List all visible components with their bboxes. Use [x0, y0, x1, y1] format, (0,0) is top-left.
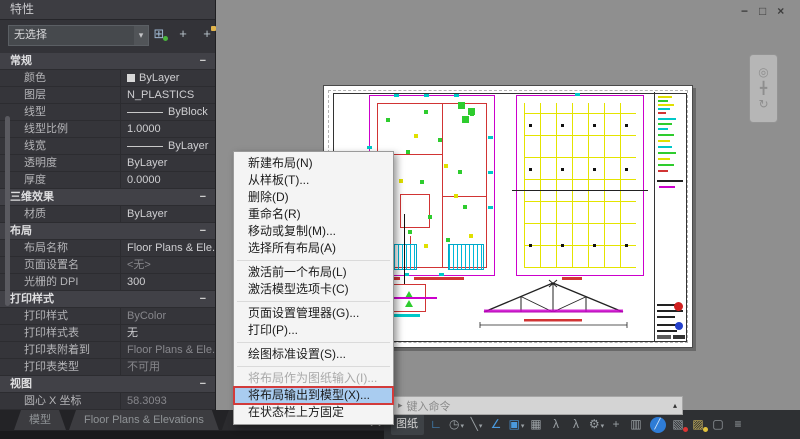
property-value[interactable]: <无> [120, 257, 215, 273]
legend-text-line [658, 164, 674, 166]
command-prompt-icon: ▸ [392, 400, 407, 411]
legend-strip [654, 92, 687, 341]
property-label: 线宽 [0, 138, 120, 154]
context-menu-item[interactable]: 将布局作为图纸输入(I)... [234, 370, 393, 387]
wall-line [442, 196, 487, 197]
property-row[interactable]: 颜色 ByLayer [0, 70, 215, 87]
titleblock-fill [657, 335, 671, 339]
legend-text-line [658, 96, 672, 98]
property-label: 光栅的 DPI [0, 274, 120, 290]
property-label: 打印样式表 [0, 325, 120, 341]
linetype-sample-icon [127, 112, 163, 113]
titleblock-logo-red [674, 302, 683, 311]
annotation-monitor-icon[interactable]: + [607, 414, 626, 435]
property-value[interactable]: ByLayer [120, 206, 215, 222]
property-row[interactable]: 图层 N_PLASTICS [0, 87, 215, 104]
workspace-switching-icon[interactable]: ⚙▾ [587, 414, 606, 435]
symbol-dots-yellow [414, 134, 418, 138]
property-label: 视图 [0, 376, 32, 392]
property-label: 图层 [0, 87, 120, 103]
quick-properties-icon[interactable]: ▥ [627, 414, 646, 435]
property-row[interactable]: 线宽 ByLayer [0, 138, 215, 155]
trusted-sources-icon[interactable]: ▨ [689, 414, 708, 435]
property-row[interactable]: 布局名称 Floor Plans & Ele... [0, 240, 215, 257]
layout-tab-context-menu: 新建布局(N)从样板(T)...删除(D)重命名(R)移动或复制(M)...选择… [233, 151, 394, 425]
property-row[interactable]: 打印样式 ByColor [0, 308, 215, 325]
property-row[interactable]: 厚度 0.0000 [0, 172, 215, 189]
context-menu-item[interactable]: 从样板(T)... [234, 172, 393, 189]
property-row[interactable]: 视图 − [0, 376, 215, 393]
linetype-sample-icon [127, 146, 163, 147]
titleblock-fill [673, 335, 685, 339]
property-label: 圆心 X 坐标 [0, 393, 120, 409]
property-label: 颜色 [0, 70, 120, 86]
annotation-visibility-icon[interactable]: λ [547, 414, 566, 435]
context-menu-item[interactable]: 删除(D) [234, 189, 393, 206]
property-label: 打印表类型 [0, 359, 120, 375]
wall-line [442, 103, 443, 268]
property-row[interactable]: 打印样式 − [0, 291, 215, 308]
collapse-icon[interactable]: − [200, 223, 215, 239]
legend-text-line [658, 134, 674, 136]
detail-caption-cyan [390, 314, 420, 317]
property-row[interactable]: 材质 ByLayer [0, 206, 215, 223]
property-value[interactable]: 不可用 [120, 359, 215, 375]
dimension-ticks-cyan [394, 94, 399, 97]
property-row[interactable]: 页面设置名 <无> [0, 257, 215, 274]
paper-space-toggle[interactable]: 图纸 [391, 414, 424, 435]
window-controls: −□× [741, 4, 784, 18]
property-value[interactable]: ByLayer [120, 138, 215, 154]
object-type-value: 无选择 [14, 26, 134, 45]
quick-select-icon[interactable]: + [198, 24, 216, 44]
property-value[interactable]: ByLayer [120, 155, 215, 171]
context-menu-item[interactable]: 绘图标准设置(S)... [234, 346, 393, 363]
collapse-icon[interactable]: − [200, 291, 215, 307]
context-menu-item[interactable]: 打印(P)... [234, 322, 393, 339]
legend-text-line [658, 104, 674, 106]
property-row[interactable]: 线型比例 1.0000 [0, 121, 215, 138]
isolate-objects-icon[interactable]: ▧ [669, 414, 688, 435]
clean-screen-icon[interactable]: ╱ [650, 417, 666, 433]
legend-text-line [658, 158, 670, 160]
dimension-tick-cyan [575, 93, 580, 96]
property-value[interactable]: Floor Plans & Ele... [120, 342, 215, 358]
restore-icon[interactable]: □ [759, 4, 766, 18]
section-line [512, 190, 648, 191]
navigation-bar[interactable]: ◎╋↻ [749, 54, 778, 123]
legend-text-line [658, 123, 672, 125]
property-label: 线型 [0, 104, 120, 120]
context-menu-item[interactable]: 在状态栏上方固定 [234, 404, 393, 421]
context-menu-item[interactable]: 页面设置管理器(G)... [234, 305, 393, 322]
legend-text-line [658, 152, 676, 154]
property-row[interactable]: 布局 − [0, 223, 215, 240]
object-type-dropdown[interactable]: 无选择 ▾ [8, 25, 149, 46]
property-row[interactable]: 打印样式表 无 [0, 325, 215, 342]
color-swatch-icon [127, 74, 135, 82]
grid-lines-yellow [524, 103, 636, 268]
titleblock-stamp-blue [675, 322, 683, 330]
property-label: 厚度 [0, 172, 120, 188]
context-menu-item[interactable]: 激活前一个布局(L) [234, 264, 393, 281]
context-menu-item[interactable] [234, 339, 393, 346]
legend-text-line [658, 140, 670, 142]
detail-symbol-green [405, 300, 413, 307]
property-row[interactable]: 打印表类型 不可用 [0, 359, 215, 376]
property-row[interactable]: 线型 ByBlock [0, 104, 215, 121]
legend-text-line [658, 128, 668, 130]
property-label: 布局名称 [0, 240, 120, 256]
object-snap-icon[interactable]: ▣▾ [507, 414, 526, 435]
context-menu-item[interactable] [234, 298, 393, 305]
context-menu-item[interactable]: 激活模型选项卡(C) [234, 281, 393, 298]
property-label: 材质 [0, 206, 120, 222]
property-value[interactable]: ByBlock [120, 104, 215, 120]
polar-tracking-icon[interactable]: ╲▾ [467, 414, 486, 435]
palette-scrollbar[interactable] [5, 116, 10, 306]
customization-icon[interactable]: ≡ [729, 414, 748, 435]
property-label: 线型比例 [0, 121, 120, 137]
select-objects-icon[interactable]: + [174, 24, 192, 44]
orbit-icon[interactable]: ↻ [758, 98, 768, 111]
layout-tab[interactable]: Floor Plans & Elevations [69, 410, 219, 430]
context-menu-item[interactable] [234, 363, 393, 370]
layout-tab[interactable]: 模型 [14, 410, 66, 430]
property-row[interactable]: 打印表附着到 Floor Plans & Ele... [0, 342, 215, 359]
legend-text-line [658, 146, 672, 148]
chevron-down-icon[interactable]: ▾ [134, 26, 148, 45]
legend-text-line [657, 180, 683, 182]
property-value[interactable]: 无 [120, 325, 215, 341]
selection-cycling-icon[interactable]: ▦ [527, 414, 546, 435]
property-label: 页面设置名 [0, 257, 120, 273]
zoom-icon[interactable]: ◎ [758, 66, 768, 79]
property-label: 打印样式 [0, 308, 120, 324]
toggle-pickadd-icon[interactable]: ⊞ [150, 24, 168, 44]
property-value[interactable]: Floor Plans & Ele... [120, 240, 215, 256]
collapse-icon[interactable]: − [200, 376, 215, 392]
property-row[interactable]: 光栅的 DPI 300 [0, 274, 215, 291]
collapse-icon[interactable]: − [200, 53, 215, 69]
minimize-icon[interactable]: − [741, 4, 748, 18]
properties-palette: 特性 无选择 ▾ ⊞++ 常规 − 颜色 ByLayer [0, 0, 216, 410]
annotation-autoscale-icon[interactable]: λ [567, 414, 586, 435]
property-rows: 常规 − 颜色 ByLayer 图层 N_PLASTICS 线型 [0, 53, 215, 410]
property-value[interactable]: 1.0000 [120, 121, 215, 137]
roof-truss-detail [476, 278, 631, 328]
grid-dots [529, 124, 532, 127]
legend-text-line [658, 118, 676, 120]
symbol-cluster-green [458, 102, 465, 109]
legend-text-line [658, 108, 670, 110]
collapse-icon[interactable]: − [200, 189, 215, 205]
property-value[interactable]: ByLayer [120, 70, 215, 86]
property-value[interactable]: ByColor [120, 308, 215, 324]
property-label: 透明度 [0, 155, 120, 171]
context-menu-item[interactable]: 重命名(R) [234, 206, 393, 223]
autocad-window: −□× ◎╋↻ [0, 0, 800, 439]
palette-toolbar: 无选择 ▾ ⊞++ [0, 21, 215, 51]
property-value[interactable]: 300 [120, 274, 215, 290]
property-label: 打印表附着到 [0, 342, 120, 358]
stair-hatch [448, 244, 484, 270]
close-icon[interactable]: × [777, 4, 784, 18]
property-row[interactable]: 三维效果 − [0, 189, 215, 206]
symbol-dots-green [386, 118, 390, 122]
property-value[interactable]: 58.3093 [120, 393, 215, 409]
plan-label-text [414, 277, 464, 280]
grid-display-icon[interactable]: ◷▾ [447, 414, 466, 435]
fullscreen-icon[interactable]: ▢ [709, 414, 728, 435]
property-value[interactable]: 0.0000 [120, 172, 215, 188]
legend-text-line [659, 186, 675, 188]
titleblock-line [657, 316, 675, 318]
context-menu-item[interactable]: 新建布局(N) [234, 155, 393, 172]
legend-text-line [658, 112, 666, 114]
legend-text-line [658, 170, 668, 172]
property-row[interactable]: 常规 − [0, 53, 215, 70]
titleblock-line [657, 330, 677, 332]
property-label: 常规 [0, 53, 32, 69]
ceiling-plan-right [516, 95, 644, 276]
context-menu-item[interactable]: 选择所有布局(A) [234, 240, 393, 257]
command-history-caret-icon[interactable]: ▴ [673, 401, 682, 410]
legend-text-line [658, 100, 668, 102]
command-line[interactable]: ▸ 键入命令 ▴ [391, 396, 683, 415]
palette-title: 特性 [0, 0, 215, 20]
pan-icon[interactable]: ╋ [760, 82, 767, 95]
command-input[interactable]: 键入命令 [407, 398, 673, 414]
property-row[interactable]: 透明度 ByLayer [0, 155, 215, 172]
context-menu-item[interactable] [234, 257, 393, 264]
property-value[interactable]: N_PLASTICS [120, 87, 215, 103]
isodraft-icon[interactable]: ∠ [487, 414, 506, 435]
property-row[interactable]: 圆心 X 坐标 58.3093 [0, 393, 215, 410]
snap-mode-icon[interactable]: ∟ [427, 414, 446, 435]
context-menu-item[interactable]: 移动或复制(M)... [234, 223, 393, 240]
context-menu-item[interactable]: 将布局输出到模型(X)... [234, 387, 393, 404]
